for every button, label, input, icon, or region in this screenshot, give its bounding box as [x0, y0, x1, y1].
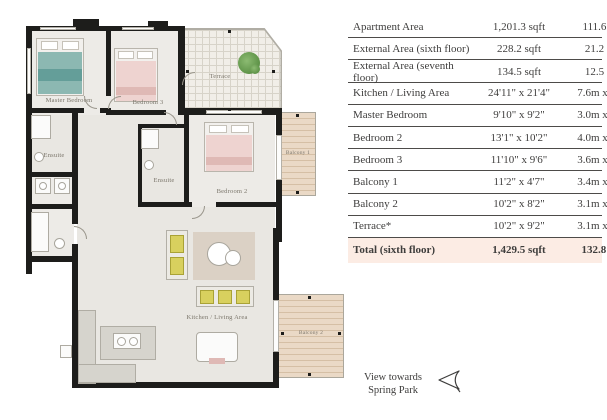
- wall: [106, 30, 111, 96]
- deck-dot: [228, 30, 231, 33]
- room-label-balcony-2: Balcony 2: [284, 331, 338, 337]
- shower: [31, 115, 51, 139]
- deck-dot: [296, 114, 299, 117]
- window: [27, 48, 31, 94]
- window: [206, 110, 262, 114]
- wall: [216, 202, 278, 207]
- deck-dot: [272, 70, 275, 73]
- shower: [141, 129, 159, 149]
- table-row: Terrace*10'2" x 9'2"3.1m x 2.8m: [348, 216, 602, 238]
- room-label-balcony-1: Balcony 1: [280, 151, 316, 157]
- view-direction-icon: [436, 369, 462, 398]
- floor-plan: Master Bedroom Bedroom 3 Terrace Ensuite…: [14, 12, 350, 408]
- dining-table: [196, 332, 238, 362]
- toilet: [54, 238, 65, 249]
- row-imperial: 11'10" x 9'6": [474, 154, 564, 166]
- wall: [72, 112, 78, 224]
- wall: [178, 26, 185, 115]
- room-label-ensuite-1: Ensuite: [32, 153, 76, 160]
- row-imperial: 1,429.5 sqft: [474, 244, 564, 256]
- room-label-bedroom-3: Bedroom 3: [118, 100, 178, 107]
- row-metric: 132.8 sqm: [564, 244, 607, 256]
- wall: [26, 256, 78, 262]
- table-row-total: Total (sixth floor)1,429.5 sqft132.8 sqm: [348, 238, 602, 263]
- window: [122, 27, 154, 30]
- row-label: Bedroom 3: [348, 154, 474, 166]
- row-metric: 21.2 sqm: [564, 43, 607, 55]
- table-row: Balcony 210'2" x 8'2"3.1m x 2.5m: [348, 194, 602, 216]
- row-label: Kitchen / Living Area: [348, 87, 474, 99]
- table-row: External Area (sixth floor)228.2 sqft21.…: [348, 38, 602, 60]
- table-row: Bedroom 311'10" x 9'6"3.6m x 2.9m: [348, 149, 602, 171]
- view-note-line2: Spring Park: [352, 384, 434, 397]
- plant-icon-small: [250, 64, 260, 74]
- wall: [30, 204, 76, 209]
- exterior-vent: [60, 345, 72, 358]
- view-note: View towards Spring Park: [352, 371, 434, 397]
- deck-dot: [338, 332, 341, 335]
- room-label-master-bedroom: Master Bedroom: [34, 98, 104, 105]
- wall: [138, 202, 192, 207]
- row-imperial: 228.2 sqft: [474, 43, 564, 55]
- row-label: External Area (seventh floor): [348, 60, 474, 84]
- row-metric: 4.0m x 3.1m: [564, 132, 607, 144]
- row-imperial: 24'11" x 21'4": [474, 87, 564, 99]
- row-label: Balcony 1: [348, 176, 474, 188]
- deck-dot: [308, 373, 311, 376]
- row-metric: 3.4m x 1.4m: [564, 176, 607, 188]
- wall: [30, 172, 76, 177]
- room-label-terrace: Terrace: [198, 74, 242, 81]
- kitchen-island: [100, 326, 156, 360]
- deck-dot: [296, 191, 299, 194]
- deck-dot: [308, 296, 311, 299]
- row-label: Apartment Area: [348, 21, 474, 33]
- wall: [273, 228, 279, 300]
- row-imperial: 9'10" x 9'2": [474, 109, 564, 121]
- room-label-ensuite-2: Ensuite: [142, 178, 186, 185]
- wall: [138, 124, 184, 128]
- row-metric: 111.6 sqm: [564, 21, 607, 33]
- row-imperial: 1,201.3 sqft: [474, 21, 564, 33]
- table-row: Kitchen / Living Area24'11" x 21'4"7.6m …: [348, 83, 602, 105]
- table-row: External Area (seventh floor)134.5 sqft1…: [348, 60, 602, 82]
- row-metric: 3.1m x 2.5m: [564, 198, 607, 210]
- rug: [193, 232, 255, 280]
- row-imperial: 10'2" x 8'2": [474, 198, 564, 210]
- row-metric: 3.0m x 2.8m: [564, 109, 607, 121]
- table-row: Bedroom 213'1" x 10'2"4.0m x 3.1m: [348, 127, 602, 149]
- row-label: Terrace*: [348, 220, 474, 232]
- table-row: Apartment Area1,201.3 sqft111.6 sqm: [348, 16, 602, 38]
- area-table: Apartment Area1,201.3 sqft111.6 sqm Exte…: [348, 16, 602, 263]
- basin: [144, 160, 154, 170]
- deck-dot: [186, 70, 189, 73]
- wall: [106, 110, 166, 115]
- row-label: Bedroom 2: [348, 132, 474, 144]
- row-imperial: 11'2" x 4'7": [474, 176, 564, 188]
- room-label-bedroom-2: Bedroom 2: [204, 189, 260, 196]
- wall: [276, 115, 282, 135]
- window: [273, 300, 279, 352]
- terrace-deck: [180, 28, 282, 115]
- row-metric: 3.6m x 2.9m: [564, 154, 607, 166]
- bathtub: [31, 212, 49, 252]
- window: [40, 27, 76, 30]
- row-metric: 12.5 sqm: [564, 66, 607, 78]
- row-imperial: 10'2" x 9'2": [474, 220, 564, 232]
- brochure-page: Master Bedroom Bedroom 3 Terrace Ensuite…: [0, 0, 607, 420]
- wall: [73, 19, 99, 27]
- row-imperial: 134.5 sqft: [474, 66, 564, 78]
- view-note-line1: View towards: [352, 371, 434, 384]
- master-bed: [36, 38, 84, 96]
- deck-dot: [228, 108, 231, 111]
- kitchen-counter-bottom: [78, 364, 136, 383]
- sofa-vertical: [166, 230, 188, 280]
- row-imperial: 13'1" x 10'2": [474, 132, 564, 144]
- row-label: Master Bedroom: [348, 109, 474, 121]
- row-metric: 7.6m x 6.5m: [564, 87, 607, 99]
- wall: [184, 113, 189, 207]
- dryer: [54, 178, 70, 194]
- row-label: Balcony 2: [348, 198, 474, 210]
- table-row: Balcony 111'2" x 4'7"3.4m x 1.4m: [348, 171, 602, 193]
- row-metric: 3.1m x 2.8m: [564, 220, 607, 232]
- window: [276, 135, 282, 180]
- row-label: External Area (sixth floor): [348, 43, 474, 55]
- bedroom2-bed: [204, 122, 254, 172]
- bedroom3-bed: [114, 48, 158, 102]
- room-label-kitchen-living: Kitchen / Living Area: [174, 315, 260, 322]
- table-row: Master Bedroom9'10" x 9'2"3.0m x 2.8m: [348, 105, 602, 127]
- row-label: Total (sixth floor): [348, 244, 474, 256]
- washer: [35, 178, 51, 194]
- sofa-horizontal: [196, 286, 254, 307]
